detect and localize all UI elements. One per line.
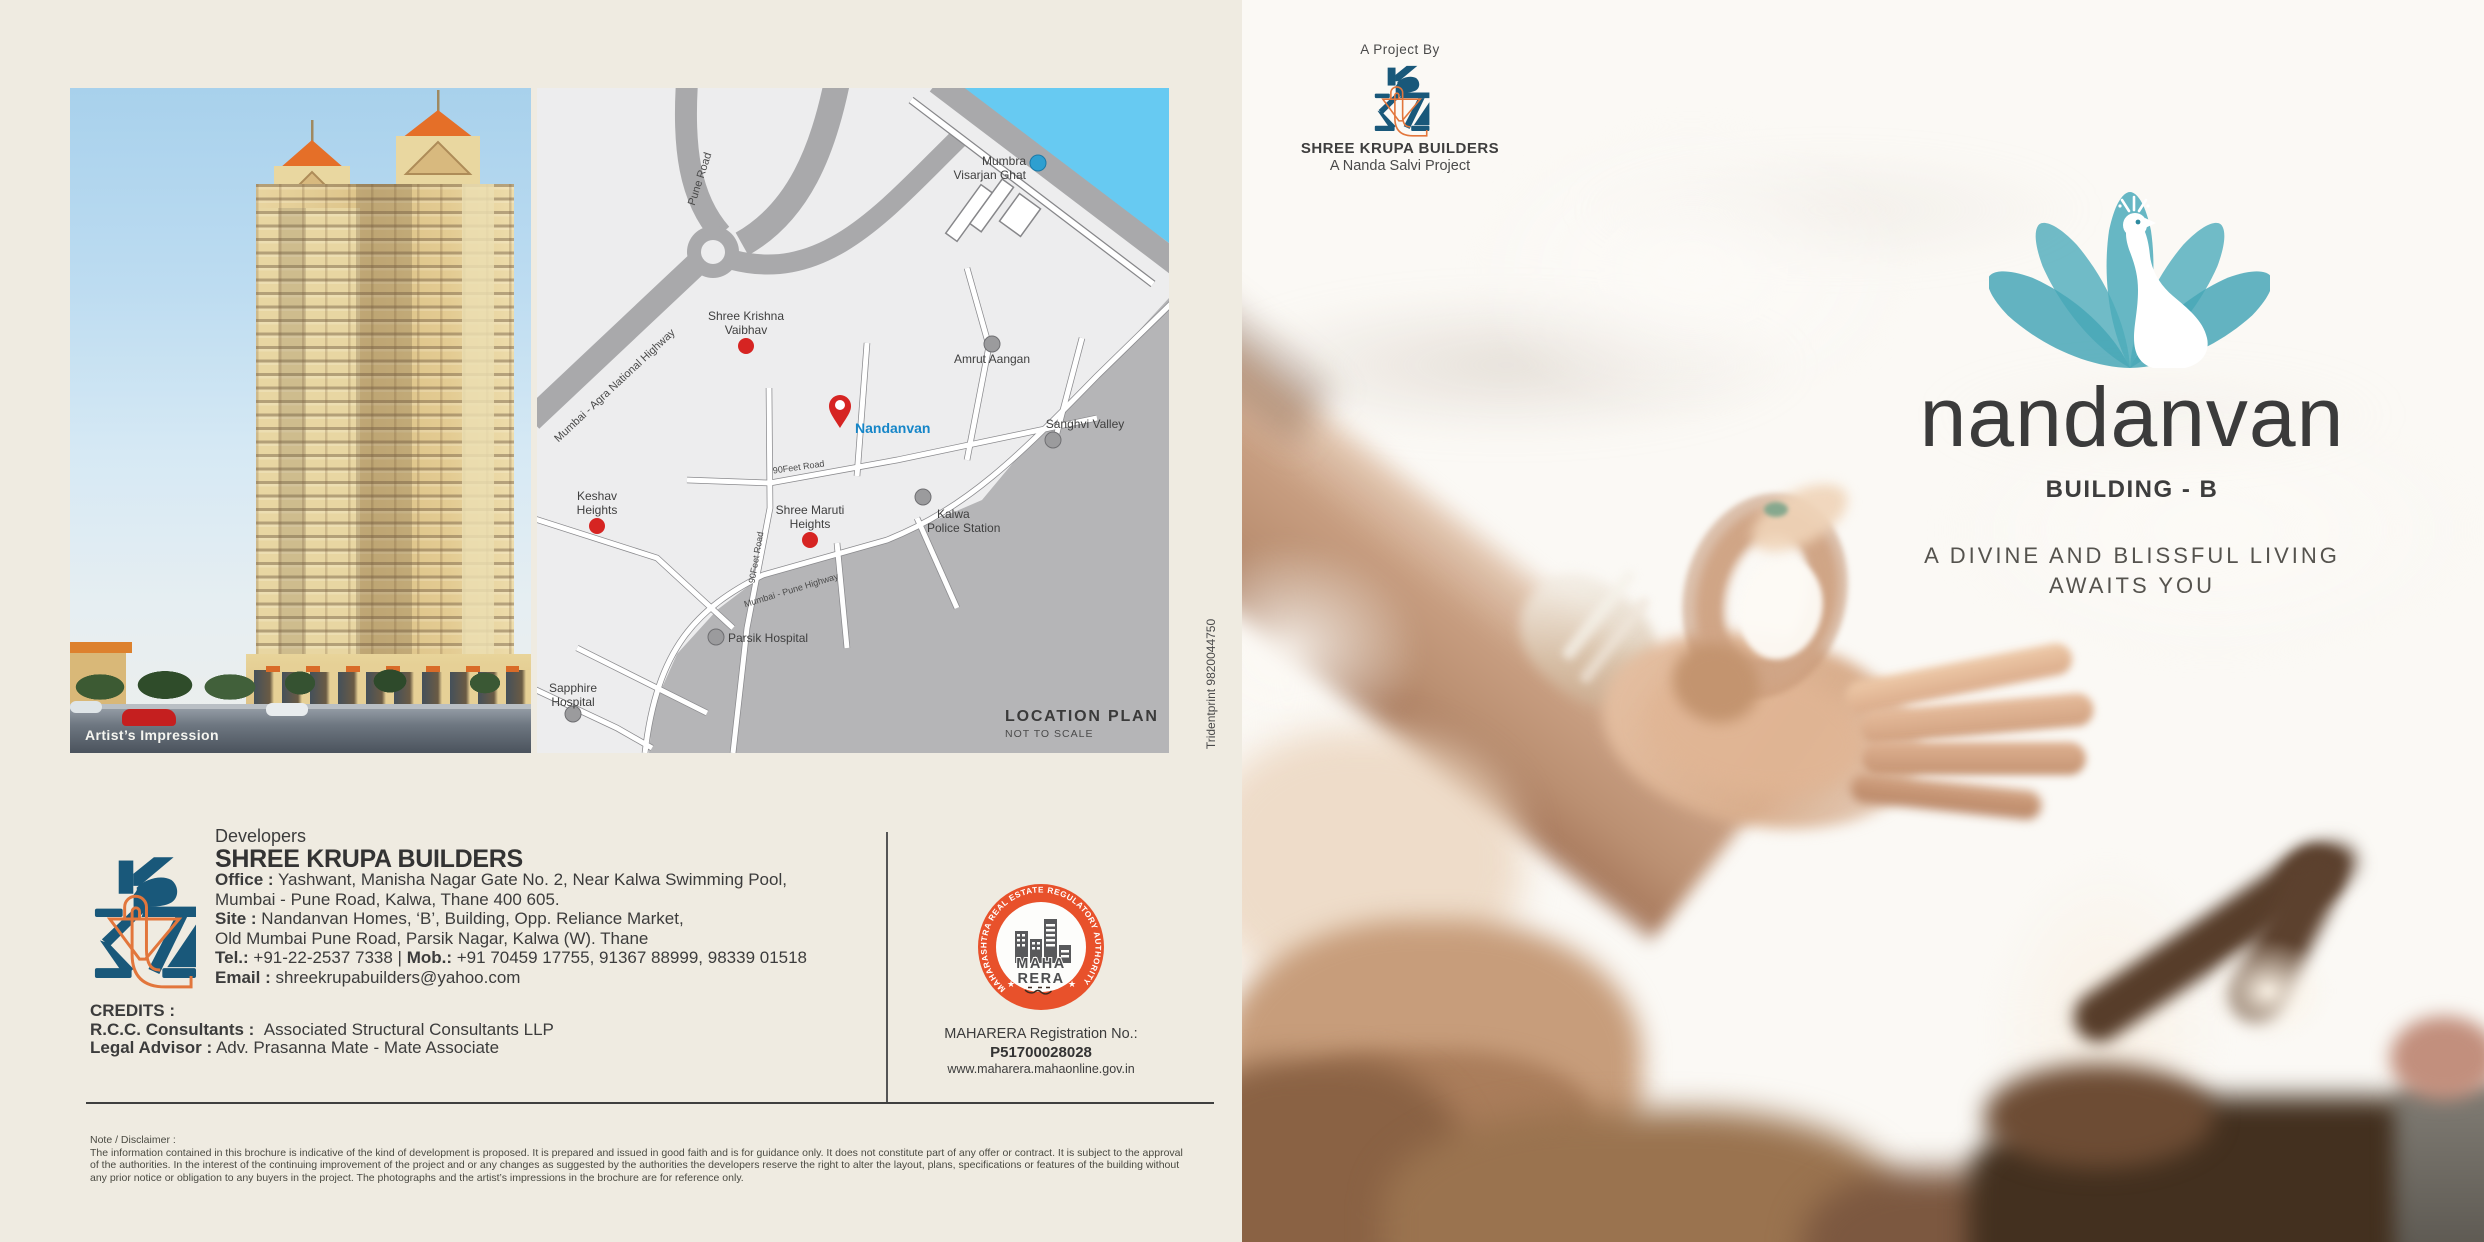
svg-text:Nandanvan: Nandanvan <box>855 420 930 436</box>
svg-text:Visarjan Ghat: Visarjan Ghat <box>954 168 1027 182</box>
svg-text:Sapphire: Sapphire <box>549 681 597 695</box>
svg-text:Shree Krishna: Shree Krishna <box>708 309 784 323</box>
svg-text:Mumbra: Mumbra <box>982 154 1026 168</box>
svg-text:Heights: Heights <box>577 503 618 517</box>
svg-text:★: ★ <box>1068 979 1076 989</box>
svg-text:Heights: Heights <box>790 517 831 531</box>
svg-text:Vaibhav: Vaibhav <box>725 323 767 337</box>
svg-text:Police Station: Police Station <box>927 521 1000 535</box>
svg-text:Hospital: Hospital <box>551 695 594 709</box>
svg-text:RERA: RERA <box>1017 971 1064 987</box>
svg-text:Kalwa: Kalwa <box>937 507 970 521</box>
svg-text:Amrut Aangan: Amrut Aangan <box>954 352 1030 366</box>
svg-text:Keshav: Keshav <box>577 489 617 503</box>
svg-text:NOT TO SCALE: NOT TO SCALE <box>1005 728 1093 740</box>
svg-text:★: ★ <box>1007 979 1015 989</box>
svg-text:Parsik Hospital: Parsik Hospital <box>728 631 808 645</box>
svg-text:LOCATION PLAN: LOCATION PLAN <box>1005 708 1159 725</box>
svg-text:Shree Maruti: Shree Maruti <box>776 503 845 517</box>
svg-text:Sanghvi Valley: Sanghvi Valley <box>1046 417 1125 431</box>
svg-text:MAHA: MAHA <box>1016 956 1066 972</box>
